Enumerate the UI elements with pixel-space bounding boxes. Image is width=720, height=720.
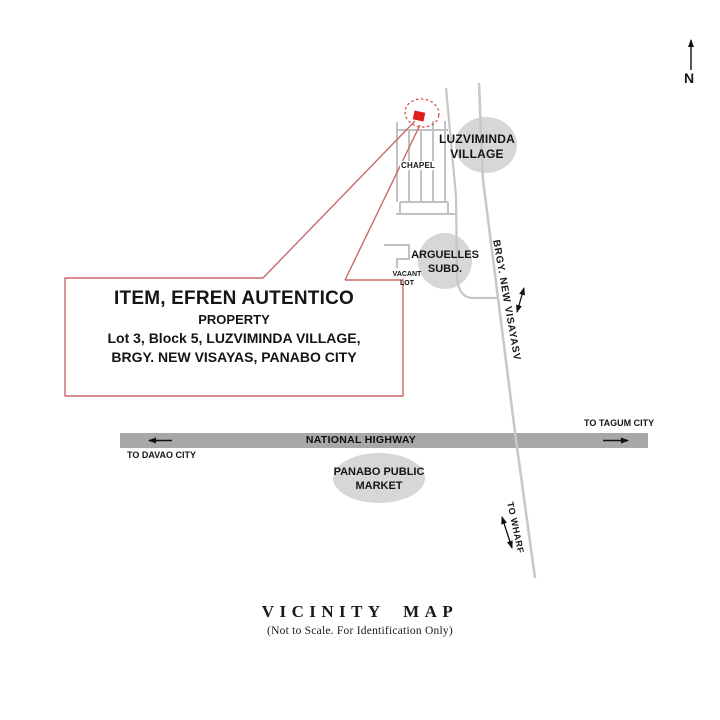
brgy-two-way-arrow-icon — [517, 288, 524, 312]
page-title: VICINITY MAP — [160, 602, 560, 622]
panabo-line1: PANABO PUBLIC — [329, 465, 429, 479]
property-lot-line: Lot 3, Block 5, LUZVIMINDA VILLAGE, — [65, 330, 403, 346]
luzviminda-line2: VILLAGE — [427, 147, 527, 162]
vicinity-map: N LUZVIMINDA VILLAGE CHAPEL ARGUELLES SU… — [0, 0, 720, 720]
panabo-public-market-label: PANABO PUBLIC MARKET — [329, 465, 429, 493]
national-highway-label: NATIONAL HIGHWAY — [281, 434, 441, 446]
property-callout-text: ITEM, EFREN AUTENTICO PROPERTY Lot 3, Bl… — [65, 278, 403, 396]
arguelles-line1: ARGUELLES — [405, 248, 485, 262]
luzviminda-line1: LUZVIMINDA — [427, 132, 527, 147]
callout-leader-left — [263, 121, 415, 278]
chapel-label: CHAPEL — [400, 161, 436, 170]
to-tagum-city-label: TO TAGUM CITY — [584, 418, 654, 428]
property-marker — [403, 97, 441, 129]
page-subtitle: (Not to Scale. For Identification Only) — [160, 625, 560, 637]
luzviminda-village-label: LUZVIMINDA VILLAGE — [427, 132, 527, 162]
property-brgy-line: BRGY. NEW VISAYAS, PANABO CITY — [65, 349, 403, 365]
north-label: N — [684, 70, 694, 86]
property-owner-line: ITEM, EFREN AUTENTICO — [65, 288, 403, 310]
marker-square — [413, 110, 426, 121]
property-type-line: PROPERTY — [65, 312, 403, 327]
title-block: VICINITY MAP (Not to Scale. For Identifi… — [160, 602, 560, 637]
panabo-line2: MARKET — [329, 479, 429, 493]
to-davao-city-label: TO DAVAO CITY — [127, 450, 196, 460]
